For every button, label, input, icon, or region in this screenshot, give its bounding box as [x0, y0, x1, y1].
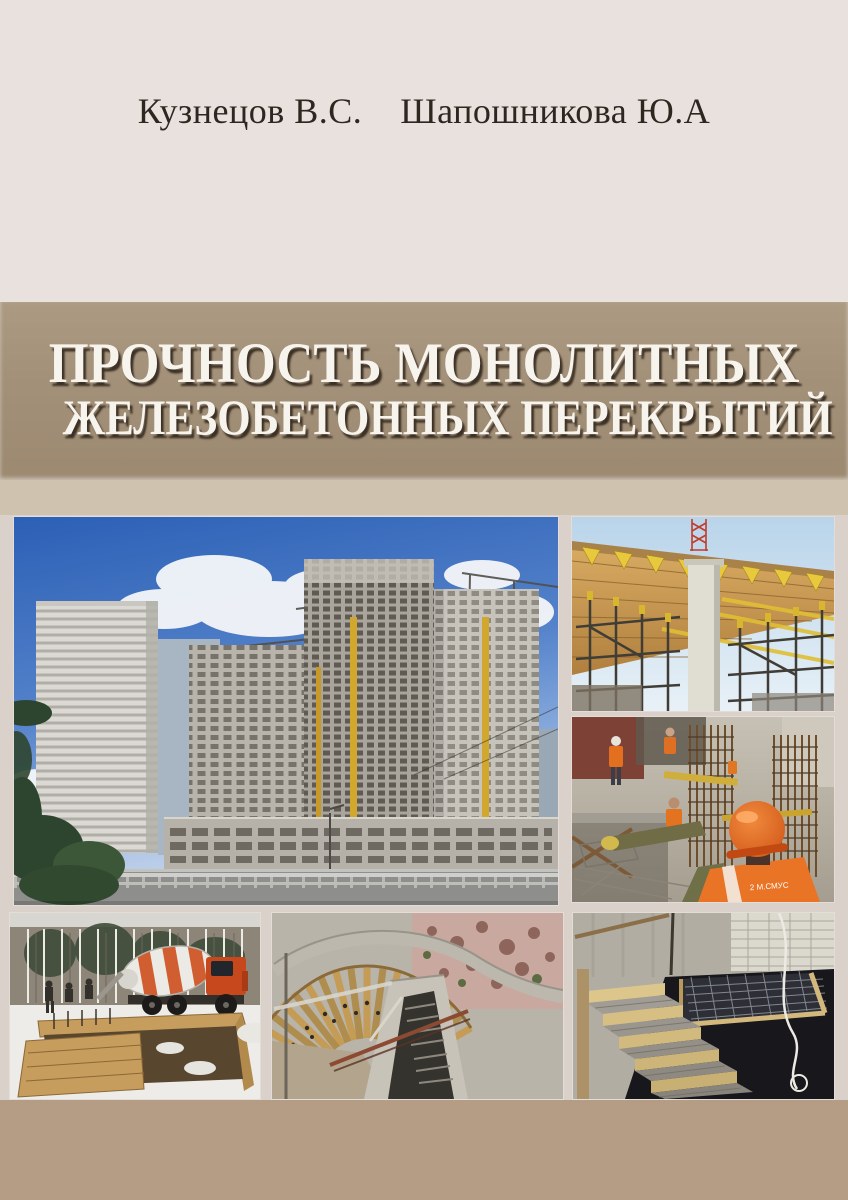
bottom-band — [0, 1100, 848, 1200]
photo-stair-concreting — [573, 913, 834, 1099]
title-line-2: ЖЕЛЕЗОБЕТОННЫХ ПЕРЕКРЫТИЙ — [0, 390, 848, 444]
photo-workers-rebar: 2 М.СМУС — [572, 717, 834, 902]
photo-winter-concreting — [10, 913, 260, 1099]
curved-wall-formwork-image — [272, 913, 563, 1099]
winter-concreting-image — [10, 913, 260, 1099]
title-line-1: ПРОЧНОСТЬ МОНОЛИТНЫХ — [0, 334, 848, 394]
author-2: Шапошникова Ю.А — [400, 90, 710, 132]
author-1: Кузнецов В.С. — [138, 90, 363, 132]
construction-panorama-image — [14, 517, 558, 905]
title-band: ПРОЧНОСТЬ МОНОЛИТНЫХ ЖЕЛЕЗОБЕТОННЫХ ПЕРЕ… — [0, 302, 848, 480]
authors-line: Кузнецов В.С. Шапошникова Ю.А — [0, 90, 848, 132]
slab-formwork-image — [572, 517, 834, 711]
photo-construction-panorama — [14, 517, 558, 905]
stair-concreting-image — [573, 913, 834, 1099]
title-band-lower-strip — [0, 480, 848, 515]
photo-slab-formwork — [572, 517, 834, 711]
photo-curved-wall-formwork — [272, 913, 563, 1099]
book-cover: Кузнецов В.С. Шапошникова Ю.А ПРОЧНОСТЬ … — [0, 0, 848, 1200]
workers-rebar-image: 2 М.СМУС — [572, 717, 834, 902]
